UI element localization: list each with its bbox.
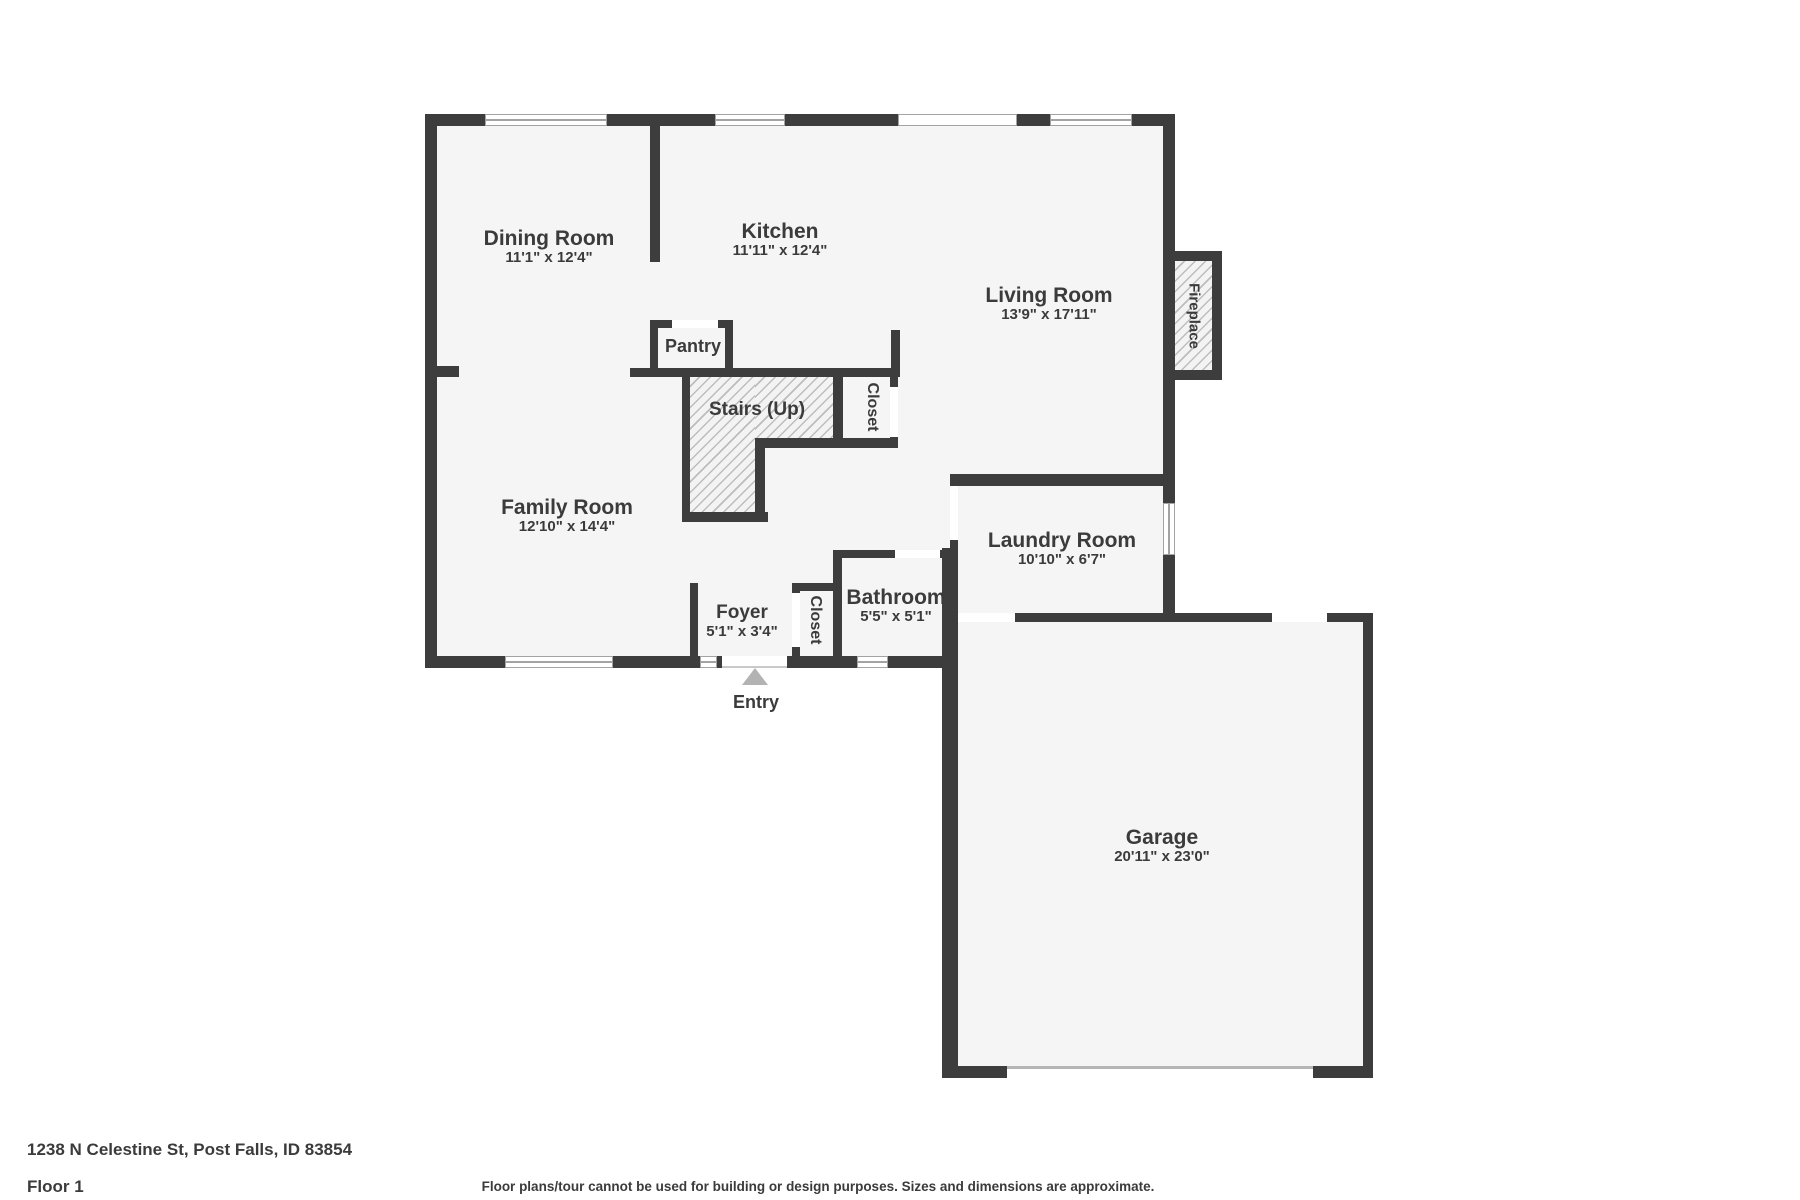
window: [505, 656, 613, 668]
door-bathroom: [895, 550, 940, 558]
room-dims: 20'11" x 23'0": [1114, 848, 1210, 866]
window: [1163, 503, 1175, 555]
window: [485, 114, 607, 126]
garage-door-opening: [1007, 1066, 1313, 1078]
room-dims: 11'1" x 12'4": [484, 249, 615, 267]
door-entry: [722, 656, 787, 668]
door-foyer-closet: [792, 593, 800, 647]
window: [700, 656, 717, 668]
door-laundry: [950, 486, 958, 540]
stairs-hatch: [690, 377, 755, 512]
room-label-dining: Dining Room 11'1" x 12'4": [484, 228, 615, 267]
room-label-living: Living Room 13'9" x 17'11": [985, 285, 1112, 324]
wall-laundry-east: [1163, 486, 1175, 503]
wall-segment: [1017, 114, 1050, 126]
wall-bathroom-north: [940, 550, 948, 558]
wall-segment: [785, 114, 898, 126]
wall-stairs: [682, 512, 768, 522]
room-name: Laundry Room: [988, 530, 1136, 551]
room-dims: 12'10" x 14'4": [501, 518, 633, 536]
wall-segment: [1163, 114, 1175, 486]
wall-pantry: [650, 320, 672, 328]
address-text: 1238 N Celestine St, Post Falls, ID 8385…: [27, 1140, 352, 1160]
door-garage-side: [1272, 613, 1327, 622]
wall-stairs: [755, 438, 843, 448]
floor-label: Floor 1: [27, 1177, 84, 1197]
wall-dining-kitchen-divider: [650, 114, 660, 262]
room-name: Family Room: [501, 497, 633, 518]
room-label-bathroom: Bathroom 5'5" x 5'1": [846, 587, 945, 626]
wall-fireplace: [1212, 251, 1222, 380]
room-name: Living Room: [985, 285, 1112, 306]
room-name: Garage: [1114, 827, 1210, 848]
floor-plan: Dining Room 11'1" x 12'4" Kitchen 11'11"…: [0, 0, 1800, 1200]
entry-arrow-icon: [742, 668, 768, 685]
wall-bathroom-north: [833, 550, 895, 558]
wall-garage-north: [1015, 613, 1272, 622]
door-pantry: [672, 320, 718, 328]
wall-kitchen-south: [630, 368, 898, 377]
wall-foyer-closet: [792, 647, 800, 668]
wall-foyer-west: [690, 583, 698, 668]
wall-fireplace: [1172, 370, 1222, 380]
room-label-family: Family Room 12'10" x 14'4": [501, 497, 633, 536]
room-name: Dining Room: [484, 228, 615, 249]
wall-garage-south: [1313, 1066, 1373, 1078]
room-label-foyer-closet: Closet: [806, 596, 824, 645]
wall-stairs: [833, 377, 843, 438]
room-label-kitchen: Kitchen 11'11" x 12'4": [733, 221, 828, 260]
wall-bathroom-east: [942, 548, 958, 1078]
wall-garage-south: [944, 1066, 1007, 1078]
window-opening: [898, 114, 1017, 126]
window: [1050, 114, 1132, 126]
fireplace-label: Fireplace: [1186, 283, 1203, 349]
wall-hall-closet: [890, 368, 898, 387]
wall-garage-east: [1363, 613, 1373, 1078]
disclaimer-text: Floor plans/tour cannot be used for buil…: [482, 1179, 1155, 1194]
room-name: Bathroom: [846, 587, 945, 608]
wall-segment: [425, 656, 505, 668]
wall-living-south: [950, 474, 1175, 486]
wall-laundry-east: [1163, 555, 1175, 613]
window: [857, 656, 888, 668]
room-dims: 10'10" x 6'7": [988, 551, 1136, 569]
wall-bathroom-west: [833, 550, 842, 668]
wall-segment: [607, 114, 715, 126]
room-label-foyer: Foyer 5'1" x 3'4": [706, 602, 777, 641]
wall-stairs: [682, 377, 690, 521]
room-dims: 5'1" x 3'4": [706, 623, 777, 641]
wall-pantry: [725, 320, 733, 368]
wall-stub-left: [437, 366, 459, 377]
wall-segment: [613, 656, 700, 668]
wall-hall-closet: [843, 438, 898, 448]
room-label-hall-closet: Closet: [863, 383, 881, 432]
entry-label: Entry: [733, 692, 779, 713]
door-laundry-garage: [958, 613, 1015, 622]
window: [715, 114, 785, 126]
room-dims: 13'9" x 17'11": [985, 306, 1112, 324]
room-label-pantry: Pantry: [665, 336, 721, 357]
room-dims: 11'11" x 12'4": [733, 242, 828, 260]
room-label-laundry: Laundry Room 10'10" x 6'7": [988, 530, 1136, 569]
room-label-stairs: Stairs (Up): [709, 399, 805, 421]
room-label-garage: Garage 20'11" x 23'0": [1114, 827, 1210, 866]
door-hall-closet: [890, 387, 898, 437]
wall-stairs: [755, 448, 765, 521]
room-name: Foyer: [706, 602, 777, 623]
wall-segment: [425, 114, 437, 668]
room-dims: 5'5" x 5'1": [846, 608, 945, 626]
room-name: Kitchen: [733, 221, 828, 242]
